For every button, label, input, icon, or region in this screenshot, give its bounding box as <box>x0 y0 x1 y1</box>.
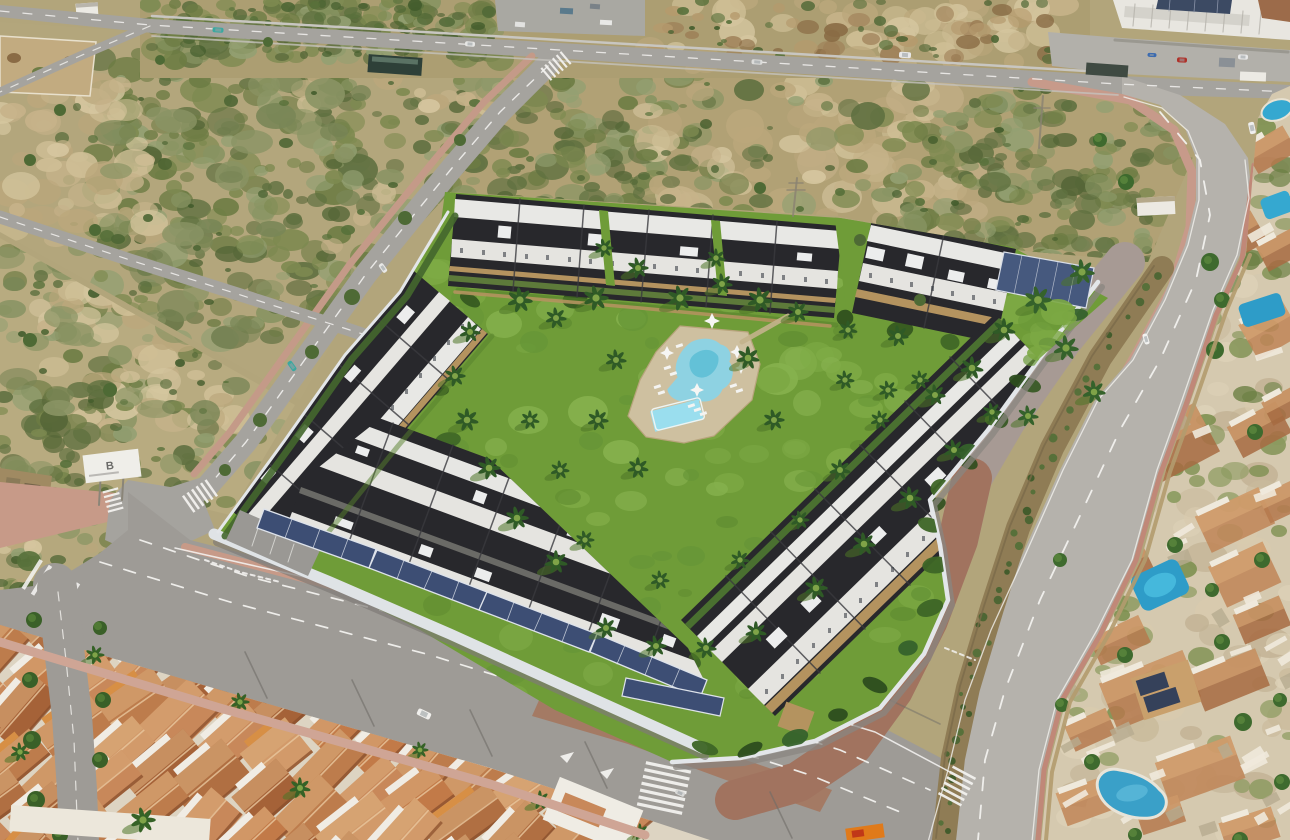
svg-text:B: B <box>105 460 114 473</box>
